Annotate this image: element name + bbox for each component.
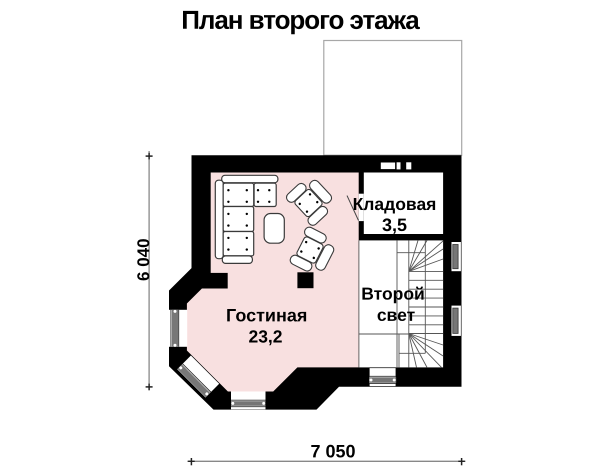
svg-text:23,2: 23,2 — [248, 326, 282, 346]
svg-text:7 050: 7 050 — [310, 441, 355, 461]
svg-text:План второго этажа: План второго этажа — [181, 5, 420, 35]
svg-text:Гостиная: Гостиная — [226, 305, 307, 325]
svg-text:Кладовая: Кладовая — [353, 194, 437, 214]
svg-text:6 040: 6 040 — [134, 238, 153, 281]
svg-text:3,5: 3,5 — [382, 215, 407, 235]
svg-text:свет: свет — [377, 305, 416, 325]
svg-text:Второй: Второй — [361, 284, 425, 304]
